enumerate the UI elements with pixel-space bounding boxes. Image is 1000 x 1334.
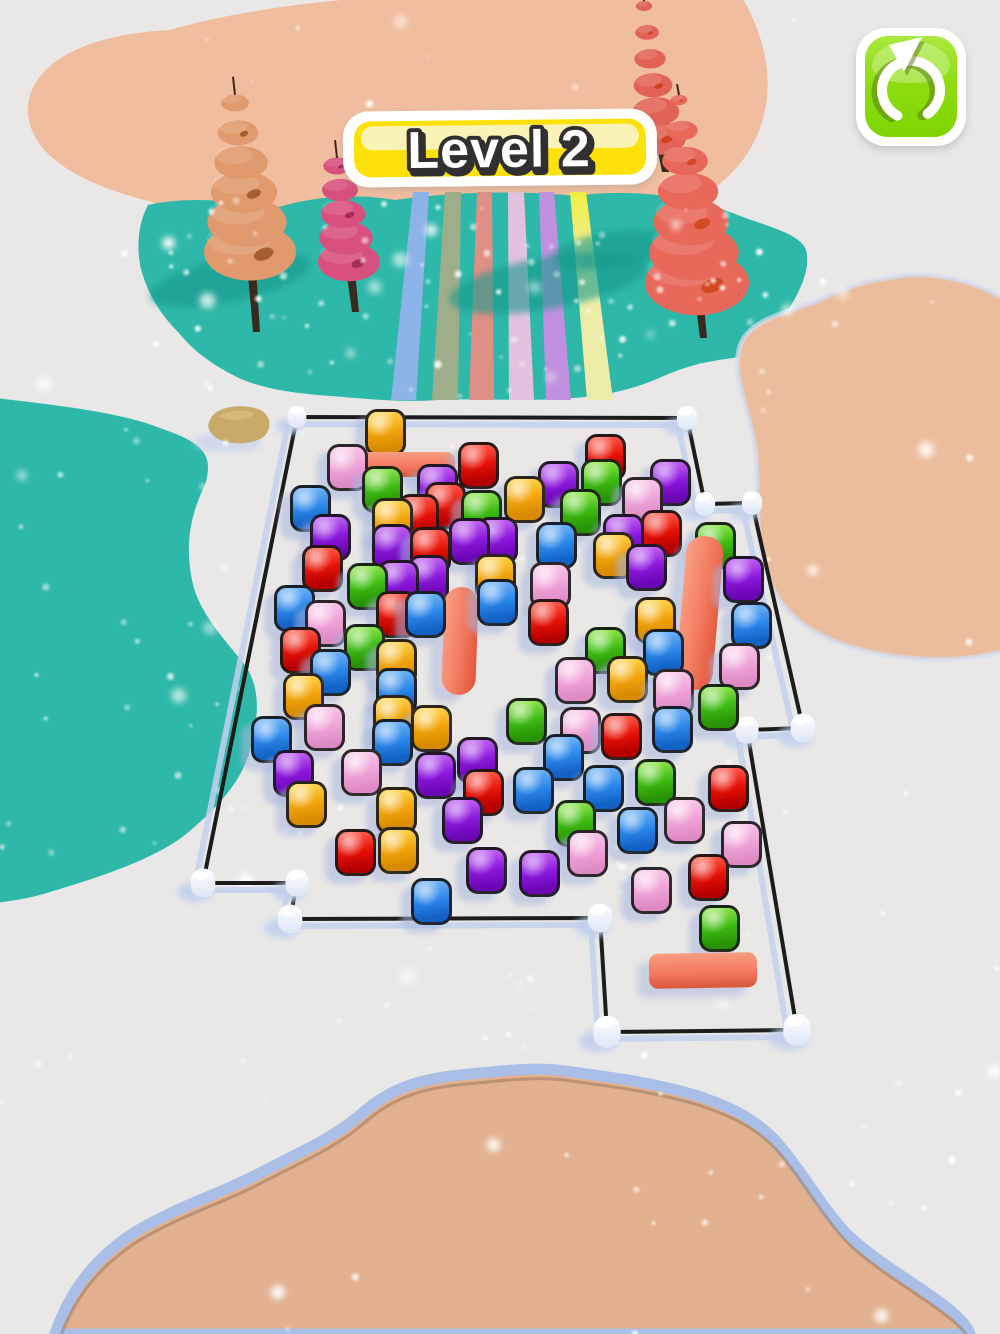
pink-cube[interactable] bbox=[341, 749, 382, 796]
pink-cube[interactable] bbox=[567, 830, 608, 877]
purple-cube[interactable] bbox=[442, 797, 483, 844]
orange-cube[interactable] bbox=[365, 409, 406, 456]
blue-cube[interactable] bbox=[652, 706, 693, 753]
pink-cube[interactable] bbox=[304, 704, 345, 751]
blue-cube[interactable] bbox=[513, 767, 554, 814]
red-cube[interactable] bbox=[528, 599, 569, 646]
purple-cube[interactable] bbox=[466, 847, 507, 894]
level-banner: Level 2 Level 2 bbox=[343, 108, 658, 187]
cube-field bbox=[0, 0, 1000, 1334]
pink-cube[interactable] bbox=[631, 867, 672, 914]
red-cube[interactable] bbox=[458, 442, 499, 489]
blue-cube[interactable] bbox=[617, 807, 658, 854]
blue-cube[interactable] bbox=[731, 602, 772, 649]
blue-cube[interactable] bbox=[411, 878, 452, 925]
red-cube[interactable] bbox=[335, 829, 376, 876]
blue-cube[interactable] bbox=[477, 579, 518, 626]
red-cube[interactable] bbox=[302, 545, 343, 592]
purple-cube[interactable] bbox=[415, 752, 456, 799]
pink-cube[interactable] bbox=[664, 797, 705, 844]
restart-circular-arrow-icon bbox=[856, 28, 966, 146]
orange-cube[interactable] bbox=[378, 827, 419, 874]
salmon-bar-obstacle bbox=[441, 586, 479, 695]
red-cube[interactable] bbox=[708, 765, 749, 812]
red-cube[interactable] bbox=[601, 713, 642, 760]
orange-cube[interactable] bbox=[607, 656, 648, 703]
green-cube[interactable] bbox=[698, 684, 739, 731]
red-cube[interactable] bbox=[688, 854, 729, 901]
orange-cube[interactable] bbox=[411, 705, 452, 752]
orange-cube[interactable] bbox=[504, 476, 545, 523]
salmon-bar-obstacle bbox=[649, 952, 758, 989]
purple-cube[interactable] bbox=[626, 544, 667, 591]
orange-cube[interactable] bbox=[286, 781, 327, 828]
level-label: Level 2 bbox=[407, 120, 591, 180]
green-cube[interactable] bbox=[699, 905, 740, 952]
pink-cube[interactable] bbox=[555, 657, 596, 704]
pink-cube[interactable] bbox=[719, 643, 760, 690]
purple-cube[interactable] bbox=[723, 556, 764, 603]
blue-cube[interactable] bbox=[405, 591, 446, 638]
purple-cube[interactable] bbox=[519, 850, 560, 897]
restart-button[interactable] bbox=[856, 28, 966, 146]
green-cube[interactable] bbox=[506, 698, 547, 745]
